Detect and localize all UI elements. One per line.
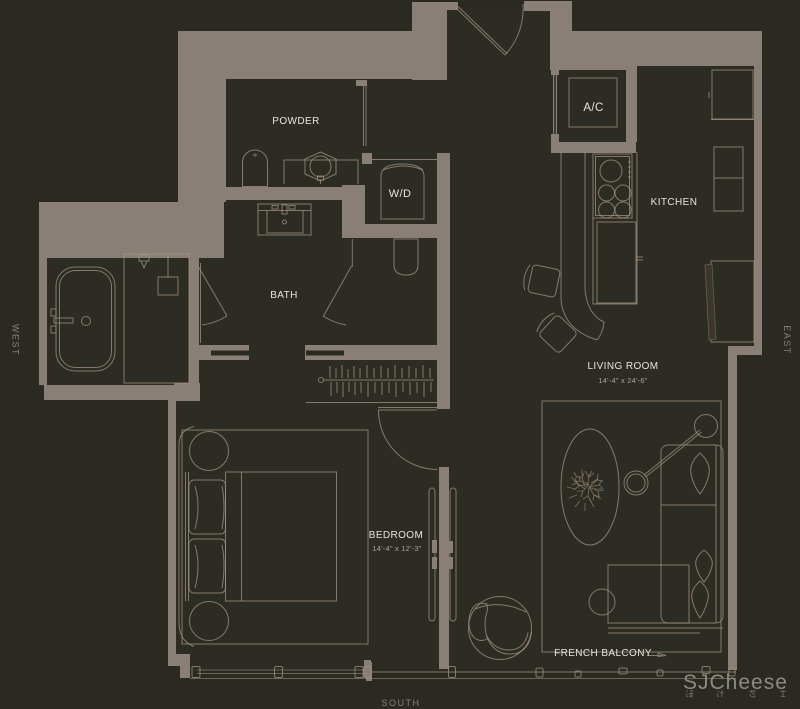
svg-text:BATH: BATH [270,290,298,301]
svg-text:A/C: A/C [583,102,603,114]
svg-text:SJCheese: SJCheese [683,671,788,694]
svg-text:WEST: WEST [11,324,21,356]
svg-text:14'-4" x 12'-3": 14'-4" x 12'-3" [372,544,421,553]
svg-text:POWDER: POWDER [272,116,319,127]
svg-text:FRENCH BALCONY: FRENCH BALCONY [554,648,652,659]
svg-text:KITCHEN: KITCHEN [651,197,698,208]
svg-text:SOUTH: SOUTH [382,698,421,708]
svg-text:14'-4" x 24'-6": 14'-4" x 24'-6" [598,376,647,385]
svg-text:EAST: EAST [782,325,792,355]
svg-text:W/D: W/D [389,188,412,200]
svg-text:BEDROOM: BEDROOM [369,530,423,541]
svg-text:LIVING ROOM: LIVING ROOM [587,361,658,372]
